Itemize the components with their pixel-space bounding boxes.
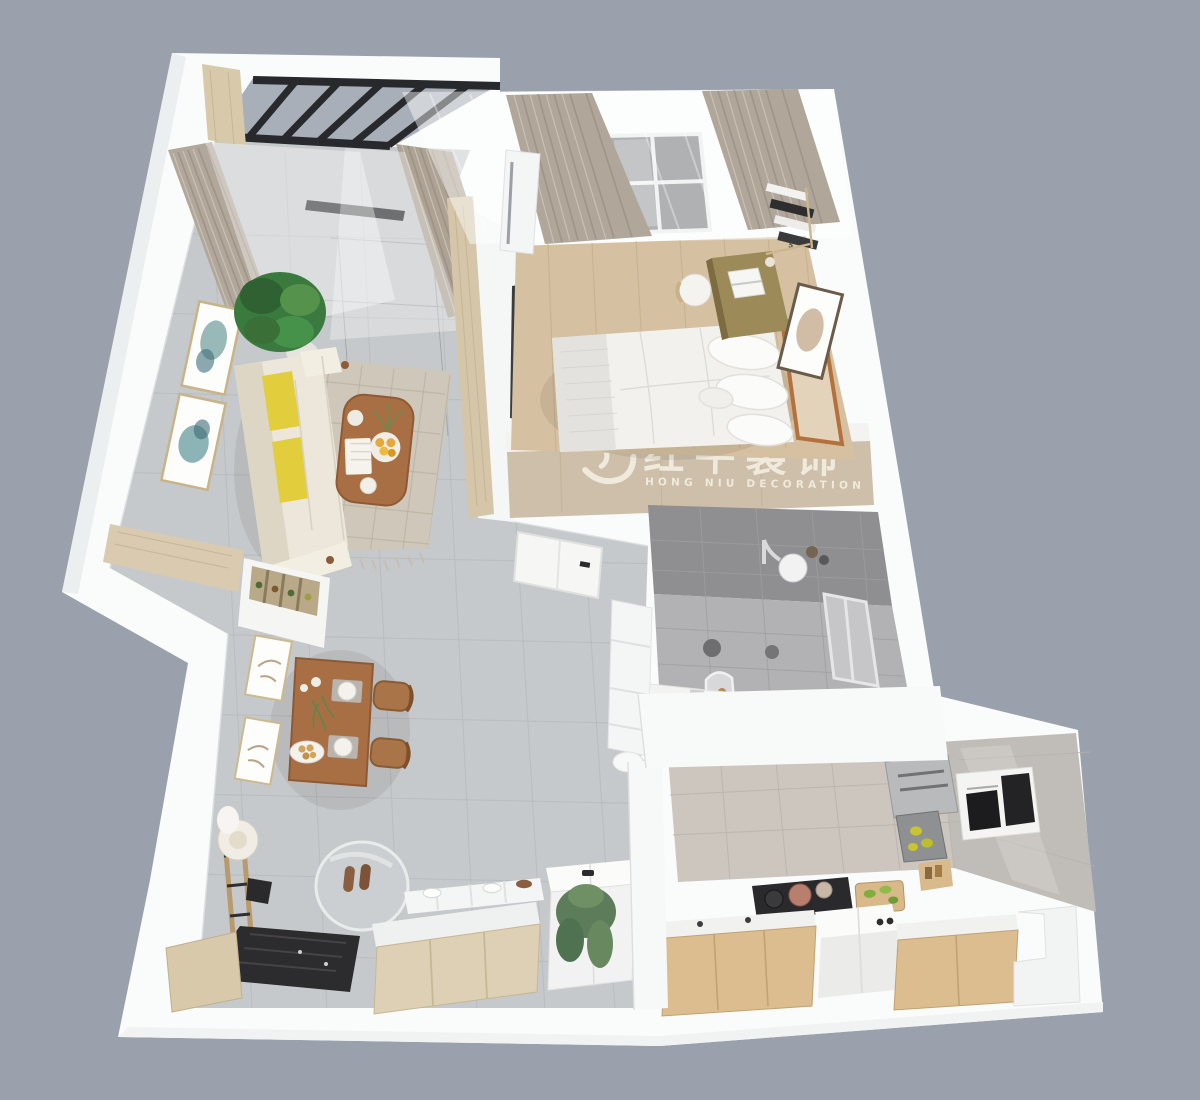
white-island-cube bbox=[815, 904, 898, 998]
round-mirror bbox=[316, 842, 408, 930]
gas-stove bbox=[896, 811, 947, 862]
balcony-door-frame-wood bbox=[202, 64, 246, 146]
bathroom bbox=[648, 505, 908, 714]
coffee-table bbox=[335, 393, 416, 508]
air-conditioner bbox=[500, 150, 540, 254]
spice-shelf bbox=[918, 859, 953, 891]
dining-chair-1 bbox=[373, 680, 413, 711]
dining-table bbox=[289, 658, 373, 786]
hanging-bag bbox=[246, 878, 272, 904]
wood-base-cabinet-right bbox=[877, 914, 1018, 1010]
hanging-towel bbox=[217, 806, 239, 834]
sofa-leg bbox=[341, 361, 349, 369]
microwave-screen bbox=[1001, 773, 1035, 826]
built-in-oven-column bbox=[956, 767, 1040, 840]
scene-canvas: ® 红牛装饰 HONG NIU DECORATION bbox=[0, 0, 1200, 1100]
sofa-armrest-top bbox=[300, 347, 342, 377]
wood-base-cabinet-left bbox=[662, 910, 816, 1016]
sofa-leg bbox=[326, 556, 334, 564]
towel-ring-1 bbox=[703, 639, 721, 657]
laundry-box bbox=[546, 860, 635, 990]
bread-plate bbox=[290, 741, 324, 763]
floorplan-render: ® 红牛装饰 HONG NIU DECORATION bbox=[0, 0, 1200, 1100]
towel-ring-2 bbox=[765, 645, 779, 659]
oven-screen bbox=[966, 790, 1001, 831]
dining-chair-2 bbox=[370, 737, 410, 768]
bathroom-wall-upper bbox=[648, 505, 892, 606]
